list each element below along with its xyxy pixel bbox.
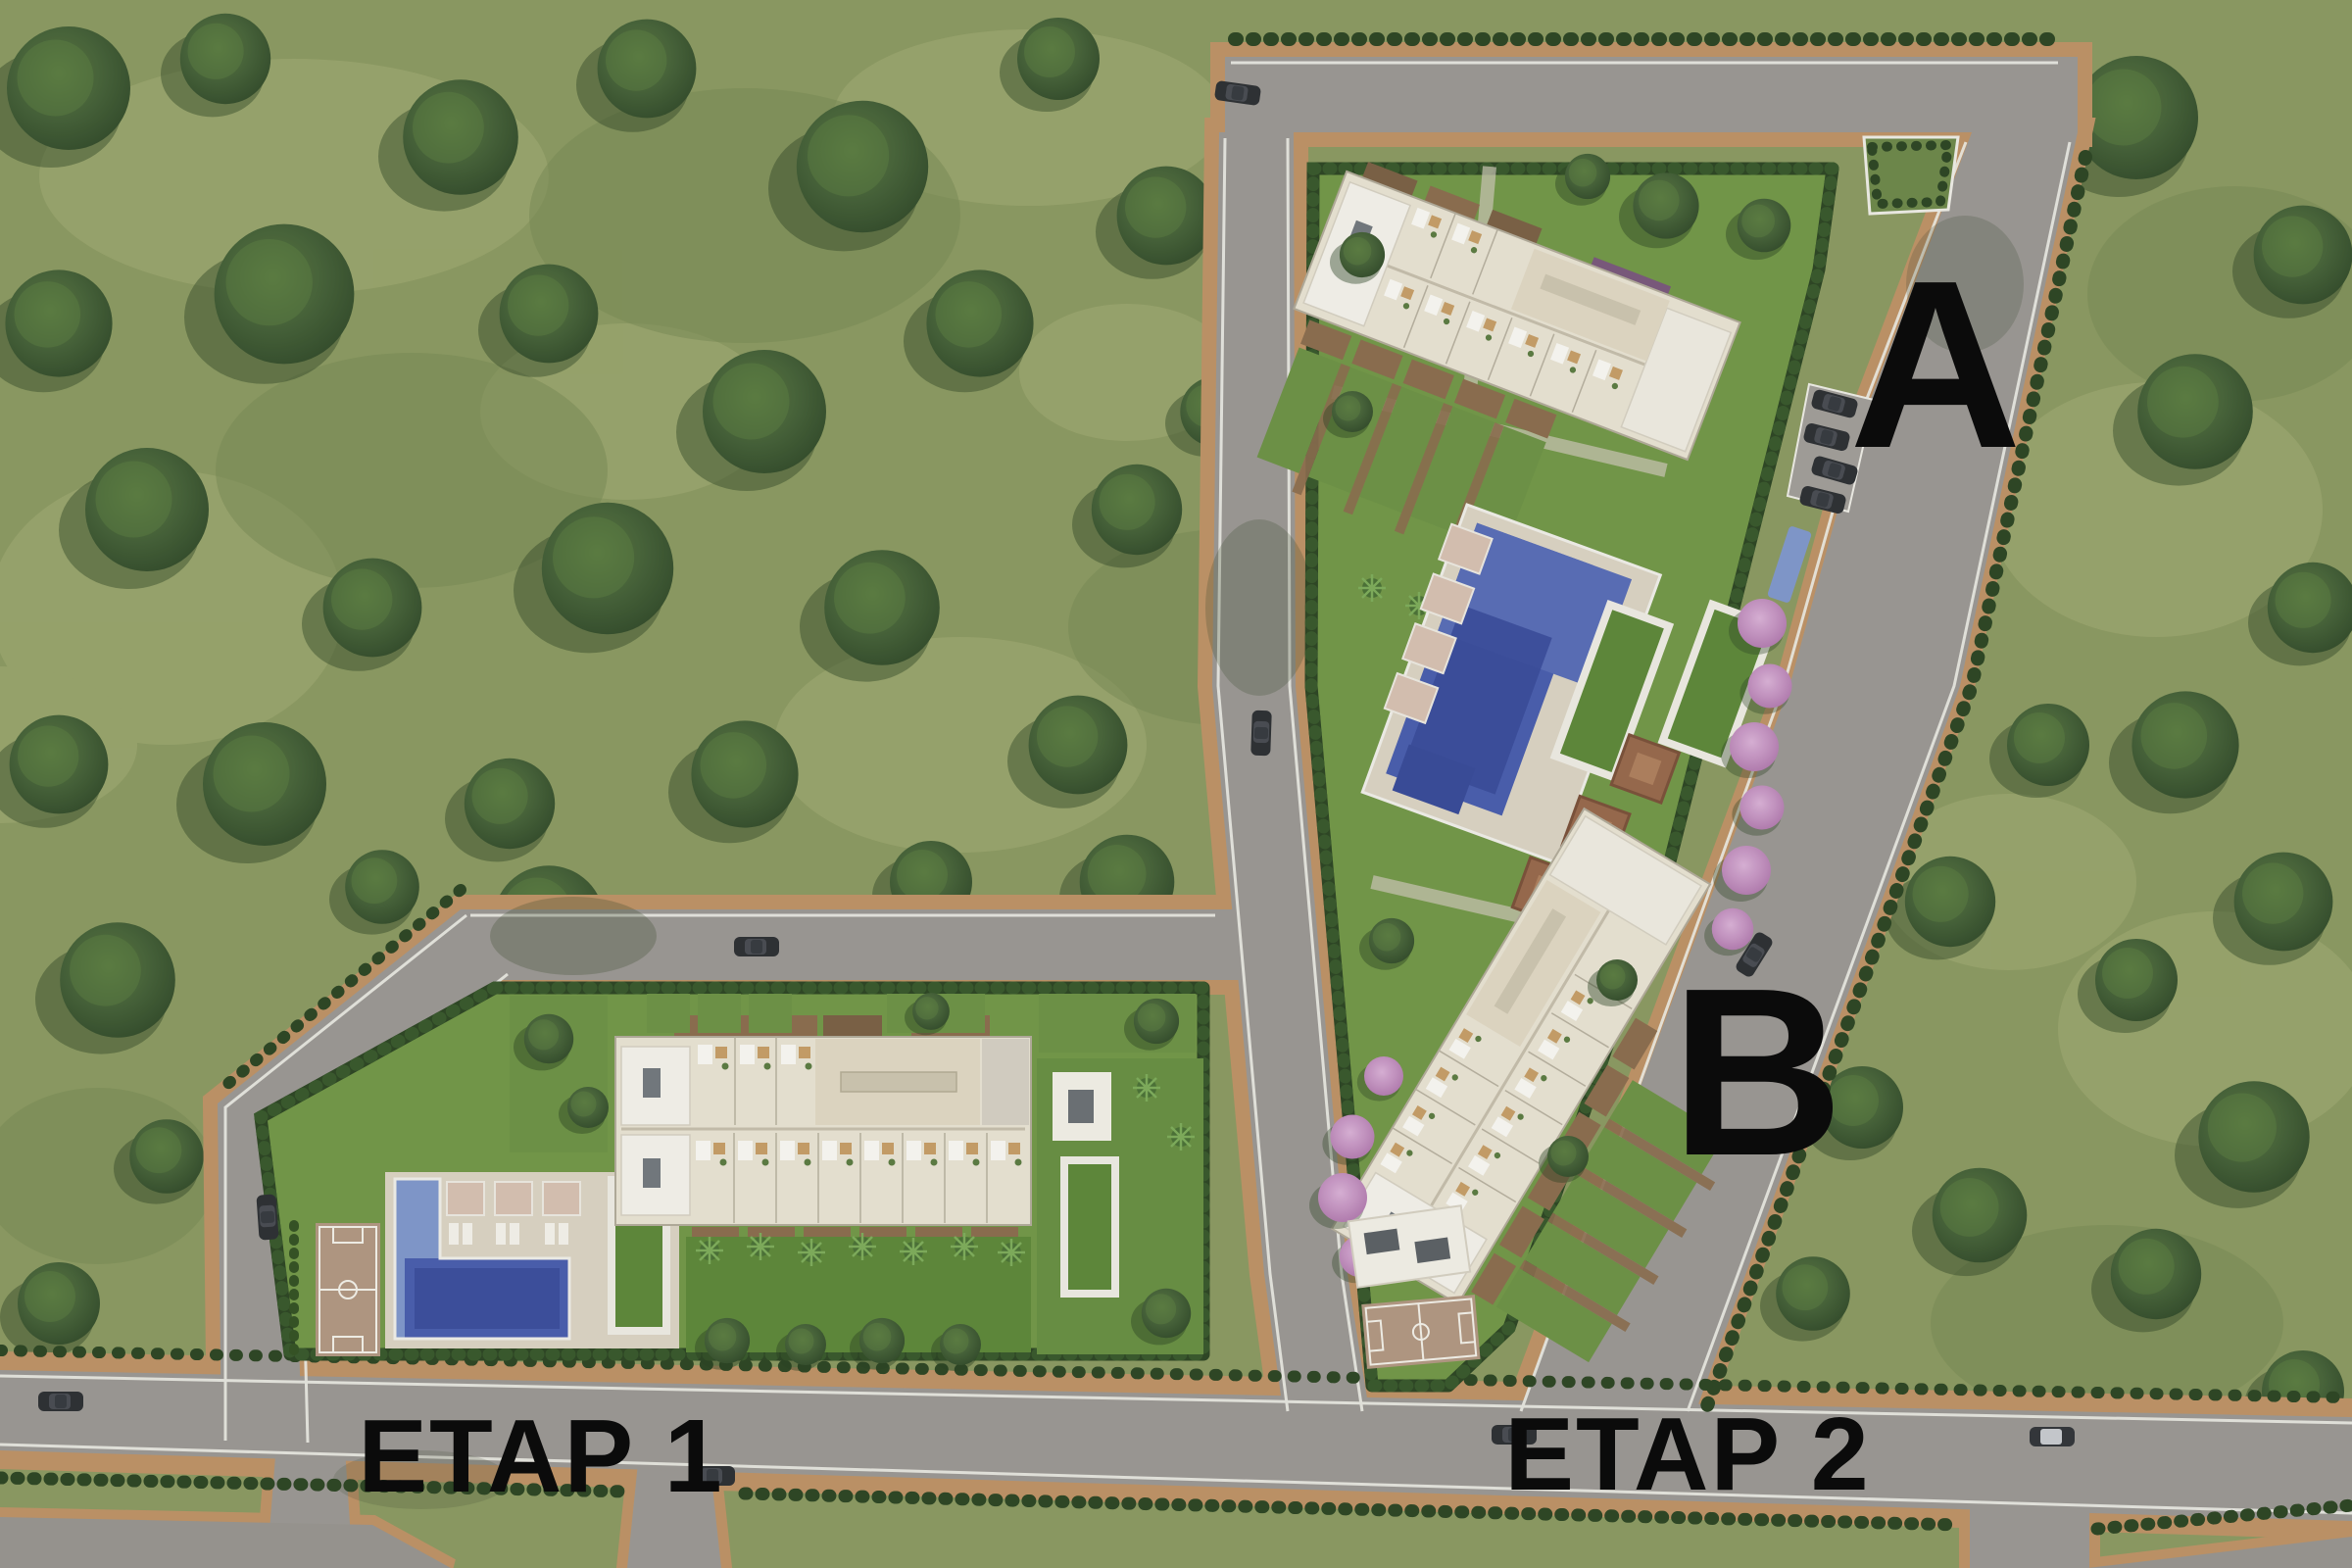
phase2-label: ETAP 2 <box>1504 1402 1870 1506</box>
block-b-label: B <box>1671 953 1843 1192</box>
phase1-label: ETAP 1 <box>358 1404 723 1508</box>
block-a-label: A <box>1849 245 2022 484</box>
site-plan-render: A B ETAP 1 ETAP 2 <box>0 0 2352 1568</box>
